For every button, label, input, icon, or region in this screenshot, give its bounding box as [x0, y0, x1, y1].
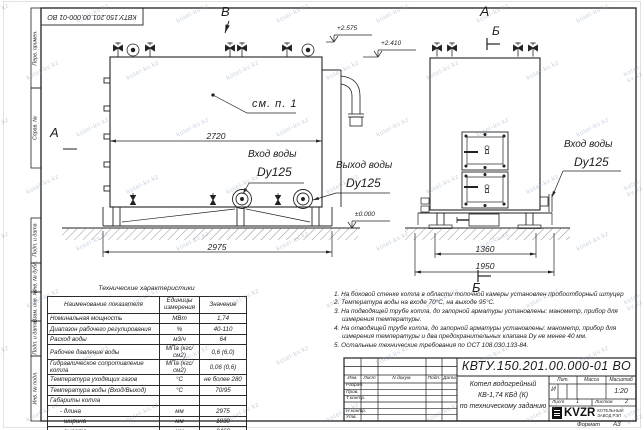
cell: Рабочее давление воды: [48, 345, 160, 360]
cell: - ширина: [48, 416, 160, 426]
elevation-label: ±0.000: [355, 212, 375, 219]
col-header: Значение: [200, 297, 247, 314]
table-row: Температура воды (Вход/Выход)°С70/95: [48, 385, 247, 395]
cell: 0,6 (6,0): [200, 345, 247, 360]
table-row: Диапазон рабочего регулирования%40-110: [48, 324, 247, 334]
cell: не более 280: [200, 375, 247, 385]
cell: мм: [160, 406, 200, 416]
tb-description: КВ-1,74 КБд (К): [457, 392, 549, 399]
front-view-linework: [63, 21, 390, 226]
tb-mass-header: Масса: [577, 378, 606, 383]
tb-col-header: Лист: [361, 377, 378, 382]
cell: 1830: [200, 416, 247, 426]
cell: Расход воды: [48, 334, 160, 344]
inlet-dn-front: Dy125: [257, 166, 292, 178]
margin-label: Взам. инв. №: [33, 290, 38, 323]
table-row: - высотамм2460: [48, 427, 247, 430]
cell: 40-110: [200, 324, 247, 334]
table-header-row: Наименование показателя Единицы измерени…: [48, 297, 247, 314]
tb-row-label: Т.контр.: [346, 397, 365, 402]
dim-2720-label: 2720: [191, 132, 241, 141]
callout-see-note: см. п. 1: [252, 99, 297, 110]
kvzr-logo-subline: ЗАВОД РЭП: [597, 413, 623, 418]
table-row: Номинальная мощностьМВт1,74: [48, 314, 247, 324]
cell: 70/95: [200, 385, 247, 395]
col-header: Единицы измерения: [160, 297, 200, 314]
margin-label: Инв. № подл.: [33, 372, 38, 405]
cell: 64: [200, 334, 247, 344]
tb-col-header: Подп.: [426, 377, 442, 382]
note-item: 2. Температура воды на входе 70°С, на вы…: [334, 299, 636, 307]
dim-1360-label: 1360: [455, 245, 515, 254]
elevation-label: +2.410: [381, 41, 401, 48]
cell: Гидравлическое сопротивление котла: [48, 360, 160, 375]
table-row: Габариты котла: [48, 395, 247, 405]
cell: МПа (кгс/см2): [160, 360, 200, 375]
cell: 0,06 (0,6): [200, 360, 247, 375]
technical-notes: 1. На боковой стенке котла в области топ…: [334, 291, 636, 350]
tb-col-header: Дата: [442, 377, 457, 382]
kvzr-logo-mark: [552, 407, 562, 419]
note-item: 3. На подводящей трубе котла, до запорно…: [334, 308, 636, 325]
table-row: Расход водым3/ч64: [48, 334, 247, 344]
tb-col-header: N докум.: [378, 377, 426, 382]
margin-label: Подп. и дата: [33, 223, 38, 256]
cell: МВт: [160, 314, 200, 324]
col-header: Наименование показателя: [48, 297, 160, 314]
tb-description: Котел водогрейный: [457, 381, 549, 388]
note-item: 5. Остальные технические требования по О…: [334, 342, 636, 350]
tb-row-label: Пров.: [346, 391, 359, 396]
cell: Температура уходящих газов: [48, 375, 160, 385]
drawing-sheet: КВТУ.150.201.00.000-01 ВО Перв. примен. …: [0, 0, 644, 430]
outlet-dn-front: Dy125: [346, 177, 381, 189]
section-marker-a-top: А: [480, 4, 489, 18]
table-row: Температура уходящих газов°Сне более 280: [48, 375, 247, 385]
cell: Диапазон рабочего регулирования: [48, 324, 160, 334]
inlet-label-front: Вход воды: [248, 150, 297, 160]
cell: 2460: [200, 427, 247, 430]
cell: °С: [160, 385, 200, 395]
margin-label: Справ. №: [33, 116, 38, 140]
inlet-dn-side: Dy125: [574, 156, 609, 168]
outlet-label-front: Выход воды: [336, 161, 392, 171]
dim-2975-label: 2975: [187, 243, 247, 252]
dim-1950-label: 1950: [455, 262, 515, 271]
cell: Номинальная мощность: [48, 314, 160, 324]
kvzr-logo-subtext: КОТЕЛЬНЫЙ ЗАВОД РЭП: [597, 408, 623, 419]
table-row: Рабочее давление водыМПа (кгс/см2)0,6 (6…: [48, 345, 247, 360]
tb-sheet-value: 1: [576, 400, 579, 406]
tb-sheets-label: Листов: [595, 401, 612, 406]
cell: Габариты котла: [48, 395, 160, 405]
note-item: 4. На отводящей трубе котла, до запорной…: [334, 325, 636, 342]
spec-table-title: Технические характеристики: [47, 286, 246, 293]
tb-description: по техническому заданию: [457, 403, 549, 410]
tb-scale-header: Масштаб: [606, 378, 636, 383]
cell: %: [160, 324, 200, 334]
tb-row-label: Утв.: [346, 416, 357, 421]
margin-label: Подп. и дата: [33, 321, 38, 354]
spec-table: Наименование показателя Единицы измерени…: [47, 296, 247, 430]
section-marker-a-left: А: [50, 126, 59, 139]
cell: [200, 395, 247, 405]
section-marker-b-top: Б: [492, 25, 500, 37]
cell: 1,74: [200, 314, 247, 324]
kvzr-logo: KVZR КОТЕЛЬНЫЙ ЗАВОД РЭП: [552, 406, 636, 420]
table-row: Гидравлическое сопротивление котлаМПа (к…: [48, 360, 247, 375]
inlet-label-side: Вход воды: [564, 140, 613, 150]
tb-sheets-value: 2: [625, 400, 628, 406]
ground-hatch: [62, 228, 570, 240]
cell: °С: [160, 375, 200, 385]
tb-lit-header: Лит.: [549, 378, 577, 383]
cell: МПа (кгс/см2): [160, 345, 200, 360]
cell: - высота: [48, 427, 160, 430]
tb-sheet-label: Лист: [552, 401, 564, 406]
format-label: Формат: [577, 423, 600, 429]
elevation-label: +2.575: [337, 26, 357, 33]
tb-row-label: Н.контр.: [346, 410, 366, 415]
table-row: - ширинамм1830: [48, 416, 247, 426]
table-row: - длинамм2975: [48, 406, 247, 416]
tb-scale-value: 1:20: [606, 388, 636, 395]
section-marker-v: В: [221, 5, 230, 18]
cell: - длина: [48, 406, 160, 416]
tb-lit-value: И: [549, 387, 558, 394]
cell: мм: [160, 416, 200, 426]
tb-row-label: Разраб.: [346, 384, 363, 389]
kvzr-logo-text: KVZR: [564, 407, 595, 419]
doc-number: КВТУ.150.201.00.000-01 ВО: [457, 360, 636, 373]
cell: мм: [160, 427, 200, 430]
tb-col-header: Изм.: [344, 377, 361, 382]
format-value: А3: [613, 422, 621, 428]
margin-label: Перв. примен.: [33, 30, 38, 65]
top-stamp-doc-number: КВТУ.150.201.00.000-01 ВО: [41, 8, 143, 25]
cell: м3/ч: [160, 334, 200, 344]
cell: 2975: [200, 406, 247, 416]
cell: Температура воды (Вход/Выход): [48, 385, 160, 395]
cell: [160, 395, 200, 405]
